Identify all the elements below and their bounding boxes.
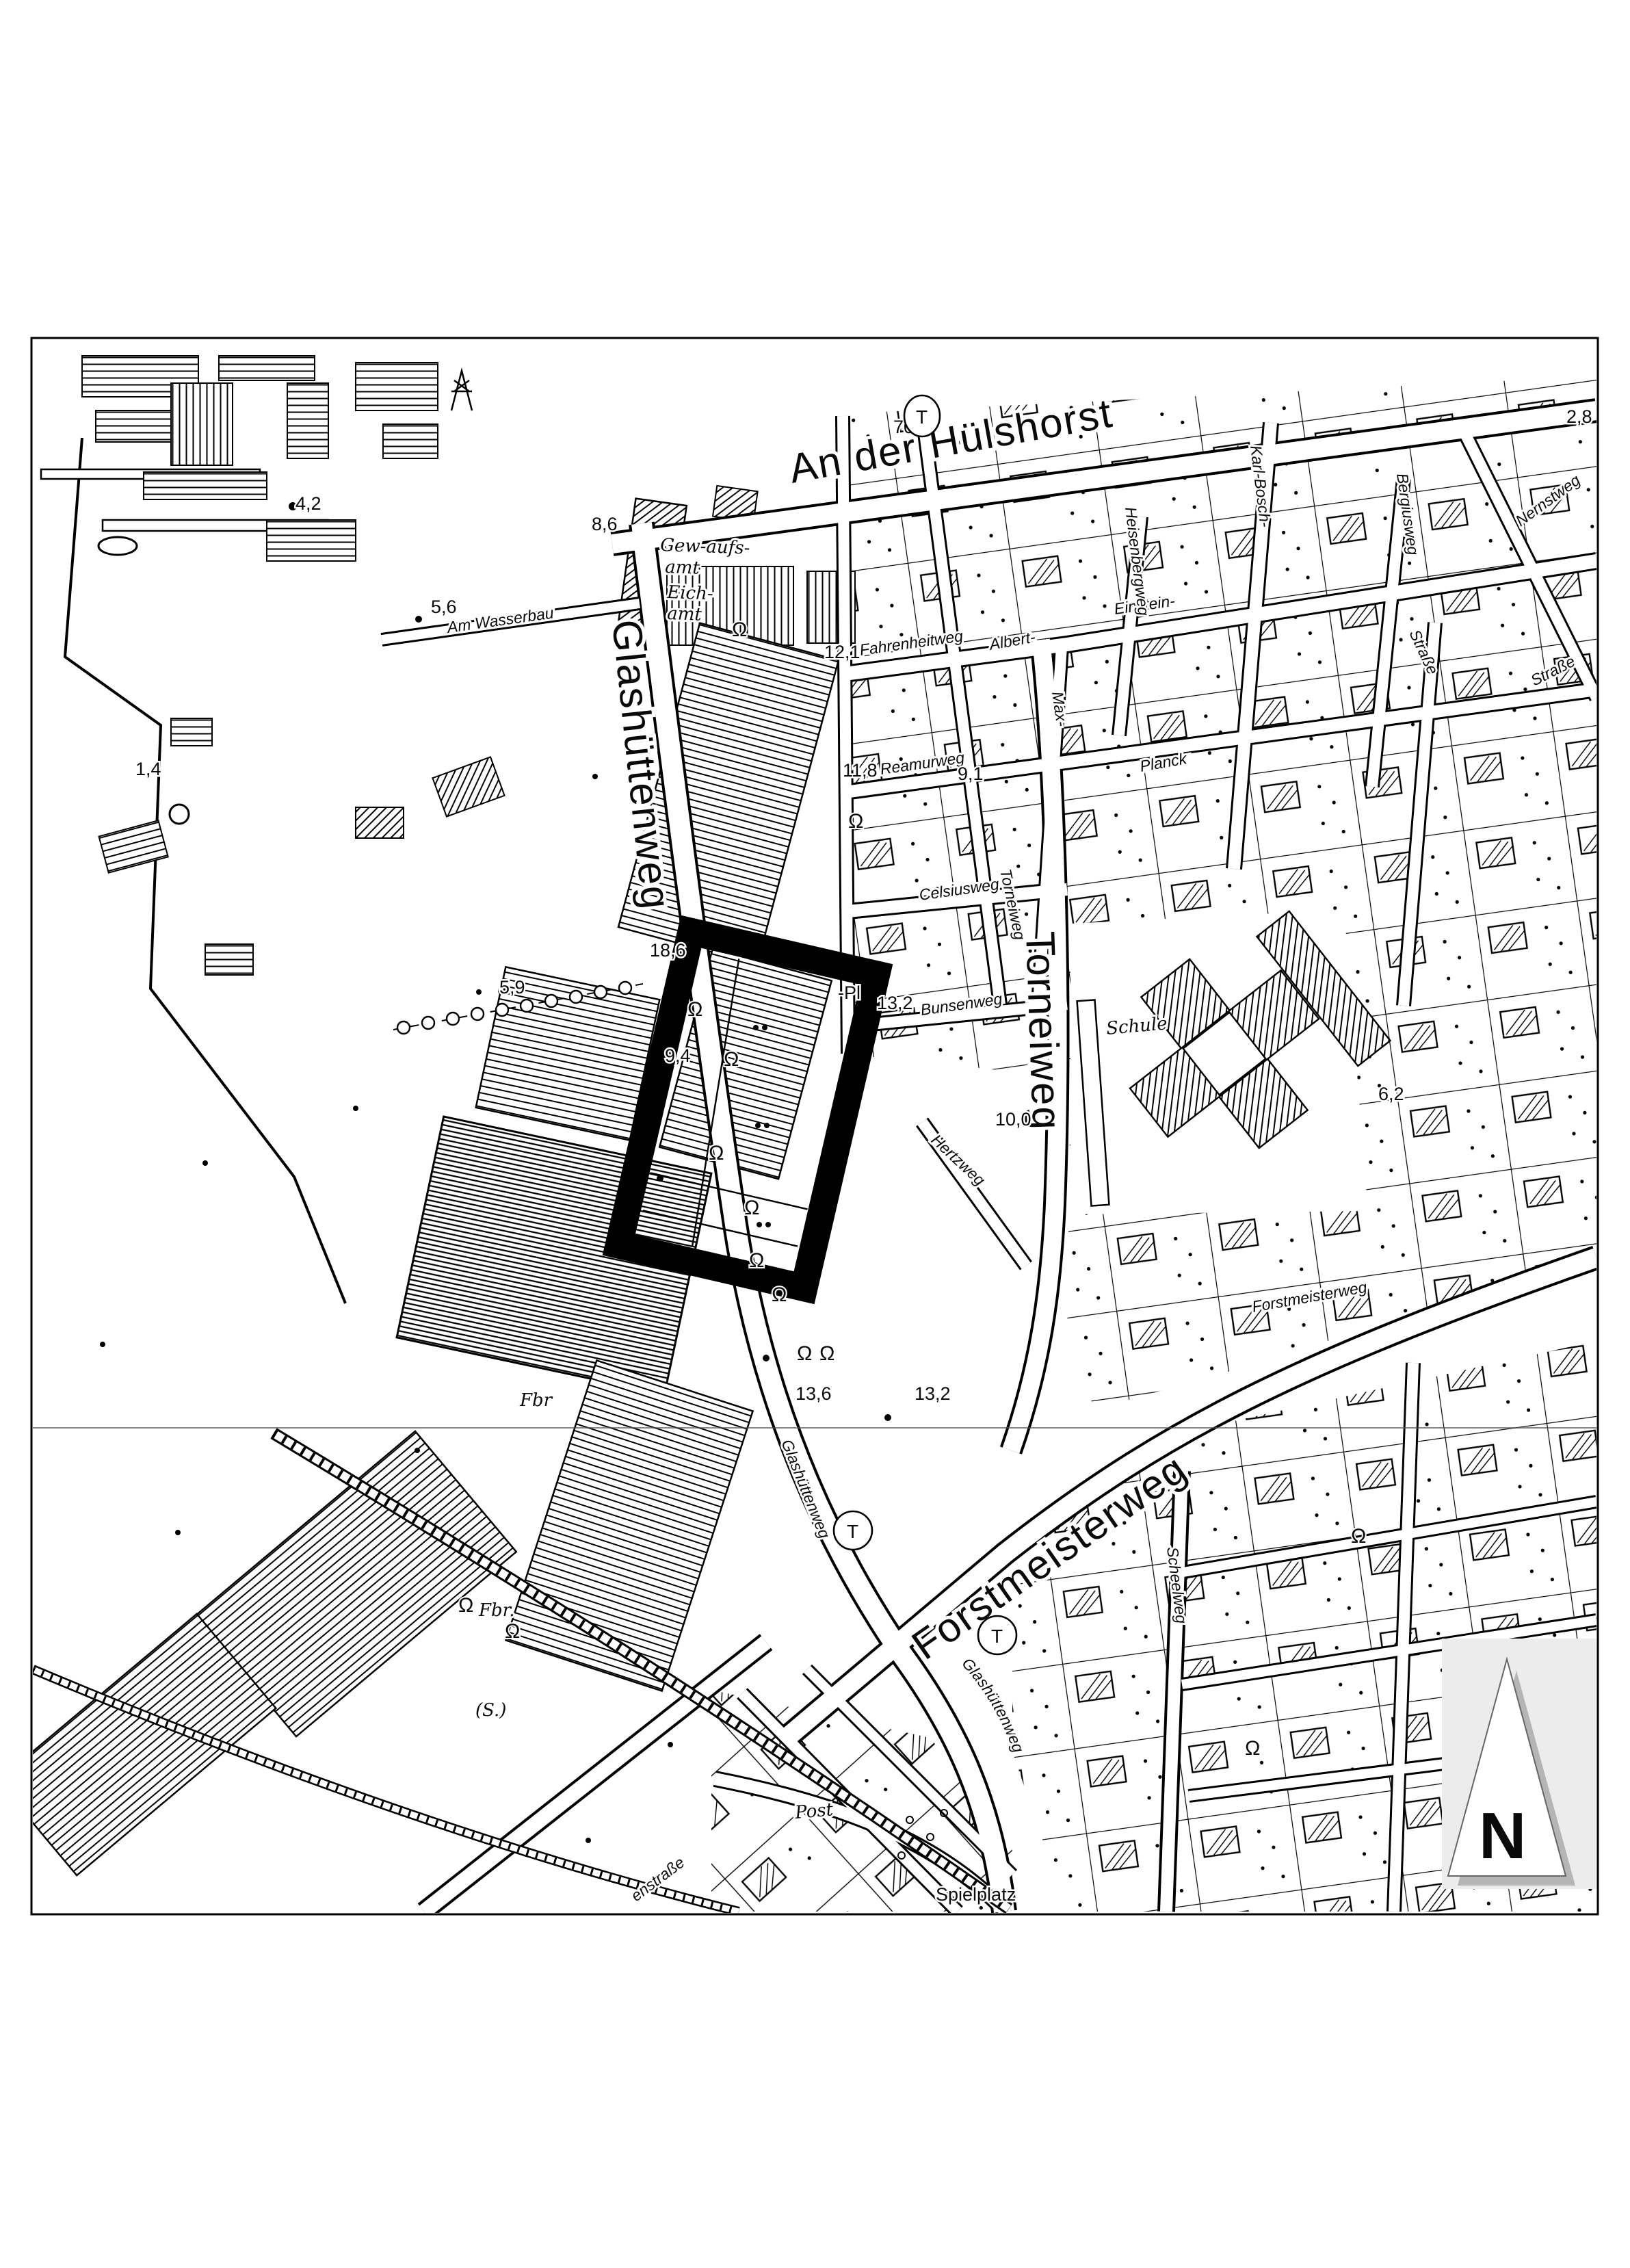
shrub-symbol: Ω <box>772 1283 787 1306</box>
city-map: An der Hülshorst Glashüttenweg Torneiweg… <box>0 0 1630 2268</box>
shrub-symbol: Ω <box>709 1142 724 1164</box>
spot-height-12-1: 12,1 <box>824 642 860 662</box>
place-label-gew-aufs: Gew-aufs- <box>660 535 750 559</box>
shrub-symbol: Ω <box>749 1249 764 1272</box>
street-label-torneiweg-big: Torneiweg <box>1017 930 1070 1132</box>
svg-text:T: T <box>916 406 928 428</box>
place-label-post: Post <box>793 1799 834 1823</box>
shrub-symbol: Ω <box>724 1048 739 1071</box>
spot-height-1-4: 1,4 <box>135 759 161 779</box>
place-label-eich-amt: amt <box>667 603 702 625</box>
north-label: N <box>1479 1799 1526 1873</box>
shrub-symbol: Ω <box>458 1594 473 1617</box>
spot-height-10-0: 10,0 <box>995 1109 1031 1130</box>
place-label-gew-aufs-amt: amt <box>665 557 700 579</box>
transformer-symbol: T <box>904 395 940 436</box>
shrub-symbol: Ω <box>819 1342 834 1365</box>
transformer-symbol: T <box>978 1616 1016 1654</box>
spot-height-9-4: 9,4 <box>665 1045 691 1066</box>
shrub-symbol: Ω <box>797 1342 812 1365</box>
spot-height-13-6: 13,6 <box>796 1383 832 1404</box>
label-pl-fragment: -Pl <box>838 982 860 1003</box>
shrub-symbol: Ω <box>848 810 863 833</box>
shrub-symbol: Ω <box>744 1197 759 1219</box>
svg-text:T: T <box>847 1521 858 1542</box>
shrub-symbol: Ω <box>687 998 702 1021</box>
spot-height-11-8: 11,8 <box>843 760 878 781</box>
spot-height-5-9: 5,9 <box>499 977 525 998</box>
spot-height-9-1: 9,1 <box>958 764 984 784</box>
spot-height-4-2: 4,2 <box>295 493 321 514</box>
place-label-spielplatz: Spielplatz <box>936 1884 1016 1905</box>
spot-height-2-8: 2,8 <box>1566 406 1592 427</box>
shrub-symbol: Ω <box>505 1620 520 1643</box>
place-label-eich: Eich- <box>666 582 713 604</box>
north-arrow: N <box>1442 1639 1596 1889</box>
place-label-fbr-2: Fbr. <box>478 1600 515 1621</box>
transformer-symbol: T <box>834 1511 872 1550</box>
shrub-symbol: Ω <box>732 618 747 641</box>
spot-height-13-2-a: 13,2 <box>877 993 913 1013</box>
svg-text:T: T <box>991 1626 1003 1647</box>
place-label-s: (S.) <box>475 1700 506 1721</box>
map-sheet: An der Hülshorst Glashüttenweg Torneiweg… <box>0 0 1630 2268</box>
shrub-symbol: Ω <box>1245 1737 1260 1760</box>
spot-height-13-2-b: 13,2 <box>915 1383 951 1404</box>
shrub-symbol: Ω <box>1351 1525 1366 1548</box>
spot-height-8-6: 8,6 <box>592 514 618 534</box>
spot-height-5-6: 5,6 <box>431 597 457 617</box>
place-label-fbr-1: Fbr <box>519 1390 553 1411</box>
spot-height-6-2: 6,2 <box>1378 1084 1404 1104</box>
spot-height-18-6: 18,6 <box>650 940 686 961</box>
